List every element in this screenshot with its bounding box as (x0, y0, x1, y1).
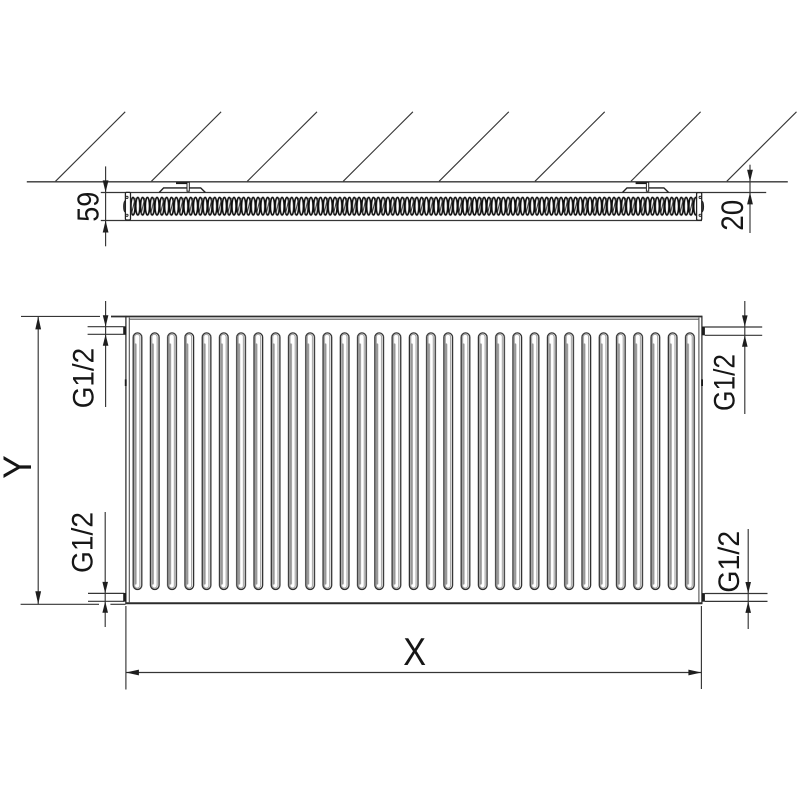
svg-text:59: 59 (71, 192, 106, 222)
svg-text:G1/2: G1/2 (709, 354, 742, 411)
svg-text:G1/2: G1/2 (67, 512, 100, 573)
svg-text:20: 20 (715, 200, 750, 231)
svg-text:X: X (403, 631, 426, 674)
svg-text:Y: Y (0, 455, 40, 479)
svg-text:G1/2: G1/2 (713, 531, 746, 593)
svg-text:G1/2: G1/2 (68, 348, 101, 409)
